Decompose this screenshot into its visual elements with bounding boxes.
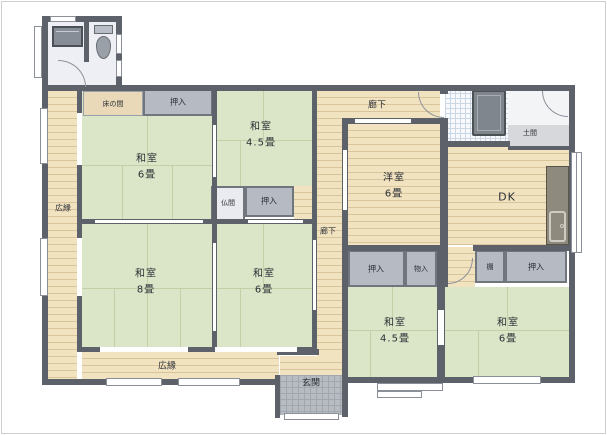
closet-front-floor — [294, 186, 312, 222]
dk-label: DK — [498, 191, 516, 204]
rouka-label-mid: 廊下 — [320, 226, 336, 237]
sliding-door — [313, 240, 316, 310]
sliding-door — [248, 220, 303, 223]
hiroen-label-bottom: 広縁 — [158, 359, 176, 372]
tatami-line — [180, 288, 181, 352]
sliding-door — [100, 347, 188, 352]
room-label-washitsu-6-tl: 和室6畳 — [136, 152, 158, 183]
window — [116, 60, 122, 77]
window — [40, 238, 48, 296]
room-label-washitsu-45-br: 和室4.5畳 — [380, 316, 410, 347]
faucet-icon — [560, 224, 564, 228]
bathtub-rim — [477, 95, 501, 131]
wall — [42, 16, 48, 90]
sliding-door — [215, 347, 297, 352]
floor-plan: 床の間 押入 仏間 押入 広縁 広縁 廊下 廊下 土間 DK 押入 物入 棚 押… — [0, 0, 607, 435]
window — [473, 376, 541, 384]
wall — [508, 146, 569, 150]
wall — [84, 20, 89, 62]
sliding-door — [213, 125, 216, 177]
porch-step — [377, 383, 443, 391]
tokonoma-label: 床の間 — [103, 99, 124, 109]
tatami-line — [114, 288, 115, 352]
wall — [473, 245, 569, 251]
veranda-left — [48, 91, 77, 379]
butsuma-label: 仏間 — [221, 198, 235, 208]
wall — [275, 375, 280, 418]
genkan-step-floor — [280, 356, 342, 375]
veranda-bottom — [82, 352, 279, 379]
sliding-door — [77, 238, 82, 296]
sliding-door — [213, 243, 216, 331]
oshiire-label: 押入 — [368, 264, 384, 275]
porch-step — [377, 391, 422, 398]
sliding-door — [343, 150, 347, 210]
tatami-line — [172, 165, 173, 219]
toilet-tank — [94, 25, 113, 34]
wall — [342, 349, 348, 417]
tana-label: 棚 — [487, 262, 494, 272]
doma-floor — [508, 125, 569, 146]
monoire-label: 物入 — [414, 264, 428, 274]
window — [40, 108, 48, 164]
bathtub — [472, 90, 506, 136]
wall — [440, 141, 510, 147]
window-mullion — [576, 153, 577, 252]
wall — [342, 245, 448, 251]
tatami-line — [370, 330, 371, 377]
doma-label: 土間 — [523, 128, 537, 138]
window — [178, 378, 240, 386]
room-label-washitsu-6-br: 和室6畳 — [497, 316, 519, 347]
sliding-door — [355, 119, 411, 123]
sliding-door — [77, 113, 82, 165]
window — [34, 26, 42, 78]
sliding-door — [438, 310, 444, 345]
window — [116, 34, 122, 54]
hiroen-label-left: 広縁 — [55, 203, 71, 214]
tatami-line — [478, 330, 479, 377]
entrance-door — [284, 413, 339, 420]
wall — [312, 88, 317, 352]
oshiire-label: 押入 — [170, 97, 186, 108]
room-label-washitsu-6-bm: 和室6畳 — [253, 267, 275, 298]
corridor-vertical — [317, 91, 342, 356]
room-label-washitsu-45-top: 和室4.5畳 — [246, 120, 276, 151]
wall — [42, 85, 575, 91]
tatami-line — [122, 165, 123, 219]
sliding-door — [95, 220, 203, 223]
tatami-line — [240, 288, 241, 352]
rouka-label-top: 廊下 — [368, 98, 386, 111]
tatami-line — [240, 140, 241, 186]
window-bay — [571, 152, 582, 253]
room-label-washitsu-8: 和室8畳 — [135, 267, 157, 298]
window — [106, 378, 162, 386]
oshiire-label: 押入 — [528, 262, 544, 273]
washbasin-line — [56, 31, 79, 32]
oshiire-label: 押入 — [261, 196, 277, 207]
window — [50, 16, 76, 22]
washbasin — [52, 26, 83, 47]
genkan-label: 玄関 — [302, 376, 320, 389]
room-label-youshitsu-6: 洋室6畳 — [383, 171, 405, 202]
